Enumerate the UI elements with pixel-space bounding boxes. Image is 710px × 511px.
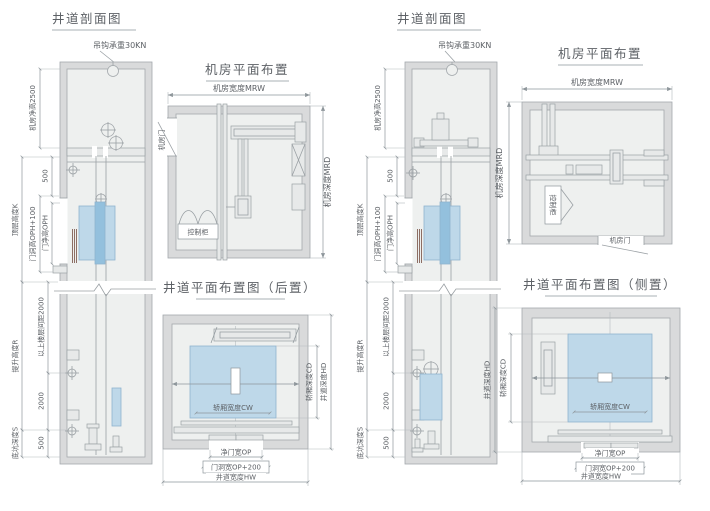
lifting-hook-icon bbox=[447, 65, 458, 76]
dim-500-top: 500 bbox=[387, 169, 395, 182]
dim-door-clear-width: 净门宽OP bbox=[595, 449, 626, 458]
shaft-plan-side: 井道平面布置图（侧置） 轿厢宽度CW 净门宽OP 门洞宽OP+200 井道宽度H… bbox=[483, 277, 681, 485]
section-left-dimensions: 机房净高2500 500 门洞高OPH+100 门净高OPH 顶层高度K 提升高… bbox=[11, 69, 67, 459]
machine-room-door-label: 机房门 bbox=[610, 236, 631, 245]
dim-floor-spacing: 以上楼层间距2000 bbox=[382, 297, 391, 357]
dim-car-depth: 轿厢深度CD bbox=[499, 359, 508, 397]
counterweight-rear bbox=[214, 329, 296, 341]
dim-500-top: 500 bbox=[42, 169, 50, 182]
dim-machine-room-height: 机房净高2500 bbox=[373, 85, 382, 131]
dim-travel-height: 提升高度R bbox=[11, 339, 20, 372]
dim-door-clear-width: 净门宽OP bbox=[221, 448, 252, 457]
section-right-dimensions: 机房净高2500 500 门洞高OPH+100 门净高OPH 顶层高度K 提升高… bbox=[356, 69, 412, 459]
shaft-plan-rear-title: 井道平面布置图（后置） bbox=[163, 280, 317, 295]
dim-2000: 2000 bbox=[383, 392, 391, 410]
dim-2000: 2000 bbox=[38, 392, 46, 410]
door-sill bbox=[558, 430, 662, 434]
dim-top-floor-height: 顶层高度K bbox=[356, 203, 365, 236]
guide-rail-bracket bbox=[231, 368, 240, 394]
dim-mrd-label: 机房深度MRD bbox=[494, 148, 504, 199]
machine-plan-left-title: 机房平面布置 bbox=[205, 62, 289, 77]
landing-floor bbox=[398, 266, 412, 273]
hook-load-label: 吊钩承重30KN bbox=[438, 40, 491, 50]
dim-door-opening-width: 门洞宽OP+200 bbox=[585, 464, 635, 473]
dim-mrw-label: 机房宽度MRW bbox=[213, 83, 265, 93]
dim-door-clear-height: 门净高OPH bbox=[41, 215, 50, 251]
machine-room-door-label: 机房门 bbox=[157, 130, 166, 151]
section-right-title: 井道剖面图 bbox=[397, 11, 467, 26]
control-cabinet-label: 控制柜 bbox=[549, 195, 558, 216]
break-line-icon bbox=[399, 281, 501, 296]
control-cabinet-label: 控制柜 bbox=[188, 228, 209, 237]
machine-room-door-swing bbox=[602, 245, 648, 254]
elevator-technical-drawing: 井道剖面图 吊钩承重30KN bbox=[0, 0, 710, 511]
car-sling bbox=[440, 202, 450, 264]
dim-door-opening-height: 门洞高OPH+100 bbox=[28, 206, 37, 261]
dim-car-depth: 轿厢深度CD bbox=[305, 363, 314, 401]
dim-shaft-depth: 井道深度HD bbox=[483, 361, 492, 400]
machine-room-plan-left: 机房平面布置 机房宽度MRW 机房门 控制柜 机房深度MRD bbox=[157, 62, 332, 260]
section-left-title: 井道剖面图 bbox=[52, 11, 122, 26]
dim-mrd-label: 机房深度MRD bbox=[322, 157, 332, 208]
car-sling bbox=[95, 202, 105, 264]
machine-room-plan-right: 机房平面布置 机房宽度MRW 控制柜 机房门 机房深度MRD bbox=[494, 46, 672, 254]
dim-door-opening-height: 门洞高OPH+100 bbox=[373, 206, 382, 261]
machine-plan-right-title: 机房平面布置 bbox=[558, 46, 642, 61]
dim-pit-depth: 底坑深度S bbox=[356, 426, 365, 459]
dim-door-clear-height: 门净高OPH bbox=[386, 215, 395, 251]
dim-shaft-width: 井道宽度HW bbox=[216, 473, 256, 482]
dim-shaft-depth: 井道深度HD bbox=[319, 363, 328, 402]
shaft-plan-rear: 井道平面布置图（后置） 轿厢宽度CW 净门宽OP 门洞宽OP+200 井道宽度H… bbox=[163, 280, 334, 486]
traction-machine bbox=[231, 126, 304, 139]
dim-500-bottom: 500 bbox=[38, 436, 46, 449]
dim-shaft-width: 井道宽度HW bbox=[581, 472, 621, 481]
dim-car-width-label: 轿厢宽度CW bbox=[213, 403, 253, 412]
break-line-icon bbox=[54, 281, 156, 296]
counterweight bbox=[112, 388, 121, 426]
guide-rail-bracket bbox=[598, 373, 612, 382]
dim-mrw-label: 机房宽度MRW bbox=[571, 77, 623, 87]
dim-door-opening-width: 门洞宽OP+200 bbox=[211, 463, 261, 472]
door-sill bbox=[181, 421, 292, 425]
dim-floor-spacing: 以上楼层间距2000 bbox=[37, 297, 46, 357]
hook-load-label: 吊钩承重30KN bbox=[93, 40, 146, 50]
shaft-plan-side-title: 井道平面布置图（侧置） bbox=[523, 277, 677, 292]
shaft-section-left: 井道剖面图 吊钩承重30KN bbox=[11, 11, 157, 464]
dim-top-floor-height: 顶层高度K bbox=[11, 203, 20, 236]
shaft-section-right: 井道剖面图 吊钩承重30KN bbox=[356, 11, 502, 464]
lifting-hook-icon bbox=[108, 66, 119, 77]
dim-500-bottom: 500 bbox=[383, 436, 391, 449]
dim-pit-depth: 底坑深度S bbox=[11, 426, 20, 459]
landing-floor bbox=[53, 266, 67, 273]
dim-travel-height: 提升高度R bbox=[356, 339, 365, 372]
drawing-svg: 井道剖面图 吊钩承重30KN bbox=[0, 0, 710, 511]
dim-car-width-label: 轿厢宽度CW bbox=[590, 402, 630, 411]
dim-machine-room-height: 机房净高2500 bbox=[28, 85, 37, 131]
